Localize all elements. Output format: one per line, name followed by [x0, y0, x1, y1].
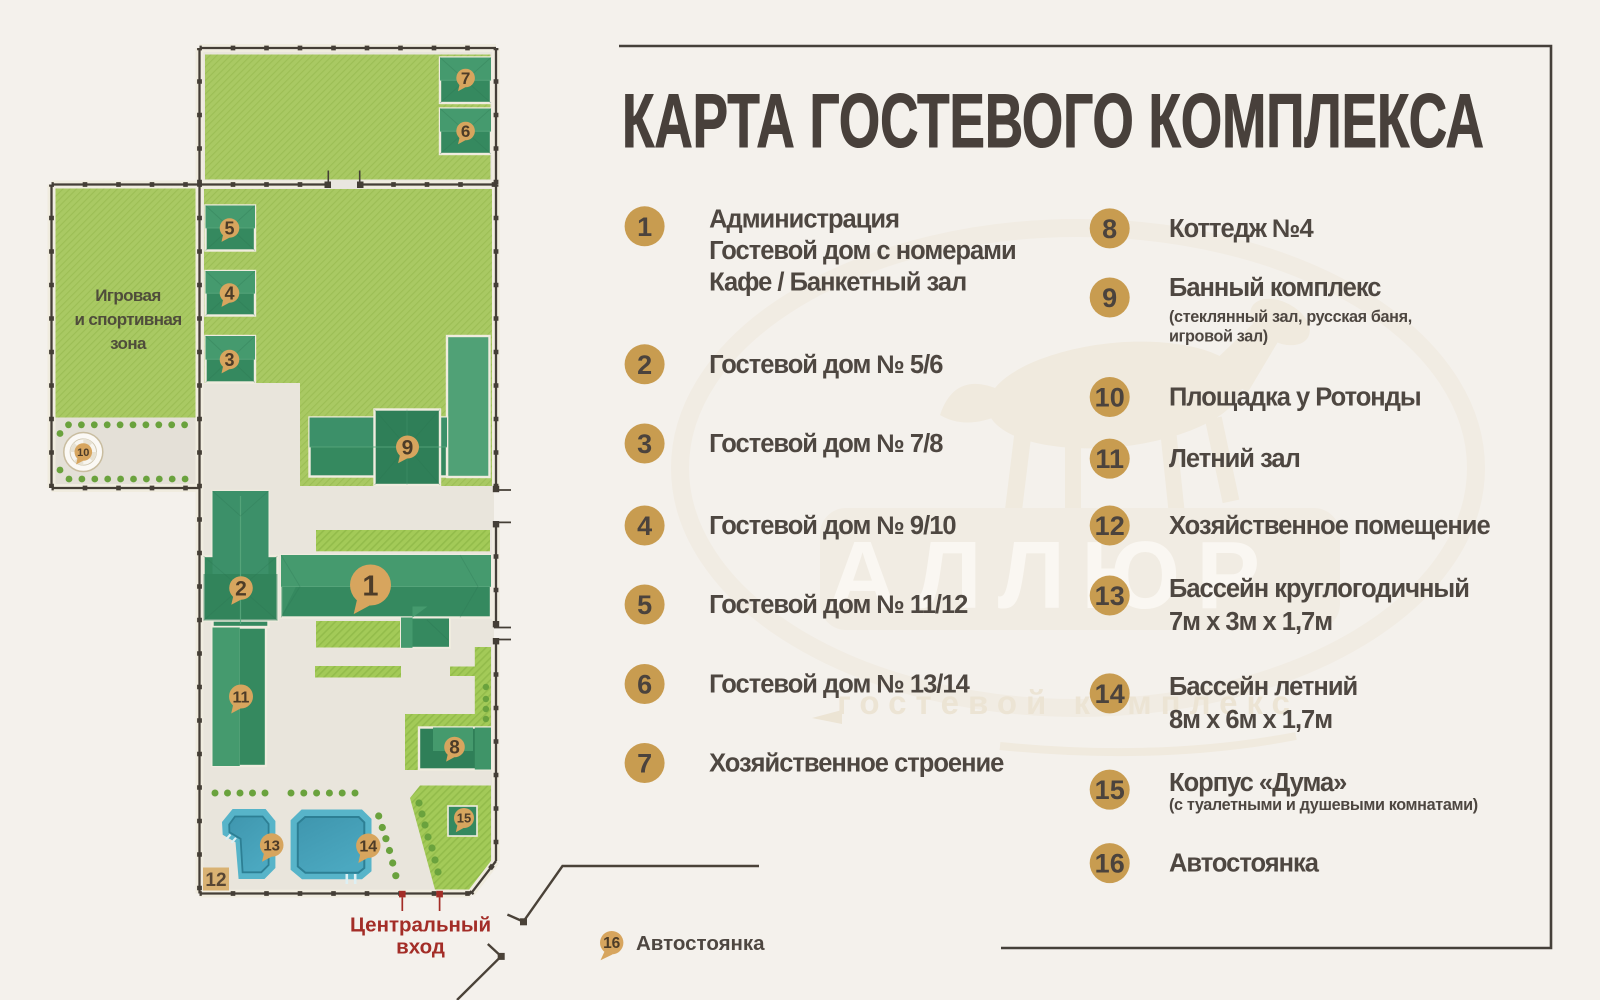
svg-text:6: 6: [637, 670, 652, 700]
svg-text:9: 9: [1102, 283, 1117, 313]
svg-text:КАРТА ГОСТЕВОГО КОМПЛЕКСА: КАРТА ГОСТЕВОГО КОМПЛЕКСА: [622, 79, 1484, 164]
svg-text:Бассейн круглогодичный: Бассейн круглогодичный: [1169, 575, 1469, 603]
svg-text:13: 13: [263, 837, 280, 854]
svg-text:9: 9: [402, 437, 414, 460]
svg-text:Гостевой дом № 13/14: Гостевой дом № 13/14: [709, 671, 970, 699]
svg-text:Коттедж №4: Коттедж №4: [1169, 215, 1314, 243]
svg-text:Банный комплекс: Банный комплекс: [1169, 274, 1381, 302]
svg-text:5: 5: [637, 590, 652, 620]
svg-text:1: 1: [637, 212, 652, 242]
svg-text:13: 13: [1095, 581, 1125, 611]
svg-text:16: 16: [1095, 849, 1125, 879]
svg-text:10: 10: [77, 447, 89, 459]
svg-text:Площадка у Ротонды: Площадка у Ротонды: [1169, 384, 1421, 412]
svg-text:Автостоянка: Автостоянка: [1169, 850, 1320, 878]
svg-text:(стеклянный зал, русская баня,: (стеклянный зал, русская баня,: [1169, 308, 1412, 326]
svg-text:16: 16: [603, 935, 621, 952]
svg-text:7м х 3м х 1,7м: 7м х 3м х 1,7м: [1169, 608, 1332, 636]
svg-text:8: 8: [1102, 214, 1117, 244]
svg-text:14: 14: [1095, 679, 1125, 709]
svg-text:Гостевой дом с номерами: Гостевой дом с номерами: [709, 237, 1016, 265]
svg-text:2: 2: [235, 578, 247, 601]
svg-text:и спортивная: и спортивная: [74, 310, 181, 329]
svg-text:10: 10: [1095, 383, 1125, 413]
svg-text:6: 6: [461, 122, 470, 141]
svg-text:11: 11: [233, 689, 250, 706]
svg-text:Кафе / Банкетный зал: Кафе / Банкетный зал: [709, 269, 966, 297]
svg-text:2: 2: [637, 350, 652, 380]
svg-text:3: 3: [637, 429, 652, 459]
svg-text:7: 7: [637, 749, 652, 779]
svg-text:8: 8: [449, 738, 460, 759]
svg-text:Бассейн летний: Бассейн летний: [1169, 673, 1357, 701]
svg-text:8м х 6м х 1,7м: 8м х 6м х 1,7м: [1169, 706, 1332, 734]
svg-text:3: 3: [224, 350, 234, 370]
svg-text:Хозяйственное помещение: Хозяйственное помещение: [1169, 512, 1490, 540]
svg-text:зона: зона: [110, 334, 147, 353]
svg-text:4: 4: [224, 283, 234, 303]
svg-text:Гостевой дом № 11/12: Гостевой дом № 11/12: [709, 591, 968, 619]
svg-text:15: 15: [457, 811, 471, 826]
svg-text:(с туалетными и душевыми комна: (с туалетными и душевыми комнатами): [1169, 796, 1478, 814]
svg-text:7: 7: [461, 69, 470, 88]
svg-text:5: 5: [224, 218, 234, 238]
svg-text:12: 12: [205, 870, 226, 891]
svg-text:Гостевой дом № 9/10: Гостевой дом № 9/10: [709, 512, 956, 540]
svg-text:Автостоянка: Автостоянка: [636, 932, 765, 955]
svg-text:Корпус «Дума»: Корпус «Дума»: [1169, 769, 1347, 797]
svg-text:вход: вход: [396, 936, 445, 959]
svg-text:Гостевой дом № 7/8: Гостевой дом № 7/8: [709, 430, 943, 458]
svg-text:11: 11: [1095, 444, 1124, 474]
svg-text:Центральный: Центральный: [350, 914, 491, 937]
svg-text:12: 12: [1095, 511, 1125, 541]
svg-text:Гостевой дом № 5/6: Гостевой дом № 5/6: [709, 351, 943, 379]
svg-text:игровой зал): игровой зал): [1169, 328, 1268, 346]
svg-text:1: 1: [362, 570, 378, 602]
svg-text:14: 14: [359, 839, 377, 856]
svg-text:Игровая: Игровая: [95, 286, 160, 305]
svg-text:Хозяйственное строение: Хозяйственное строение: [709, 750, 1004, 778]
svg-text:4: 4: [637, 511, 652, 541]
svg-text:Летний зал: Летний зал: [1169, 445, 1300, 473]
svg-text:Администрация: Администрация: [709, 206, 899, 234]
svg-text:15: 15: [1095, 775, 1125, 805]
